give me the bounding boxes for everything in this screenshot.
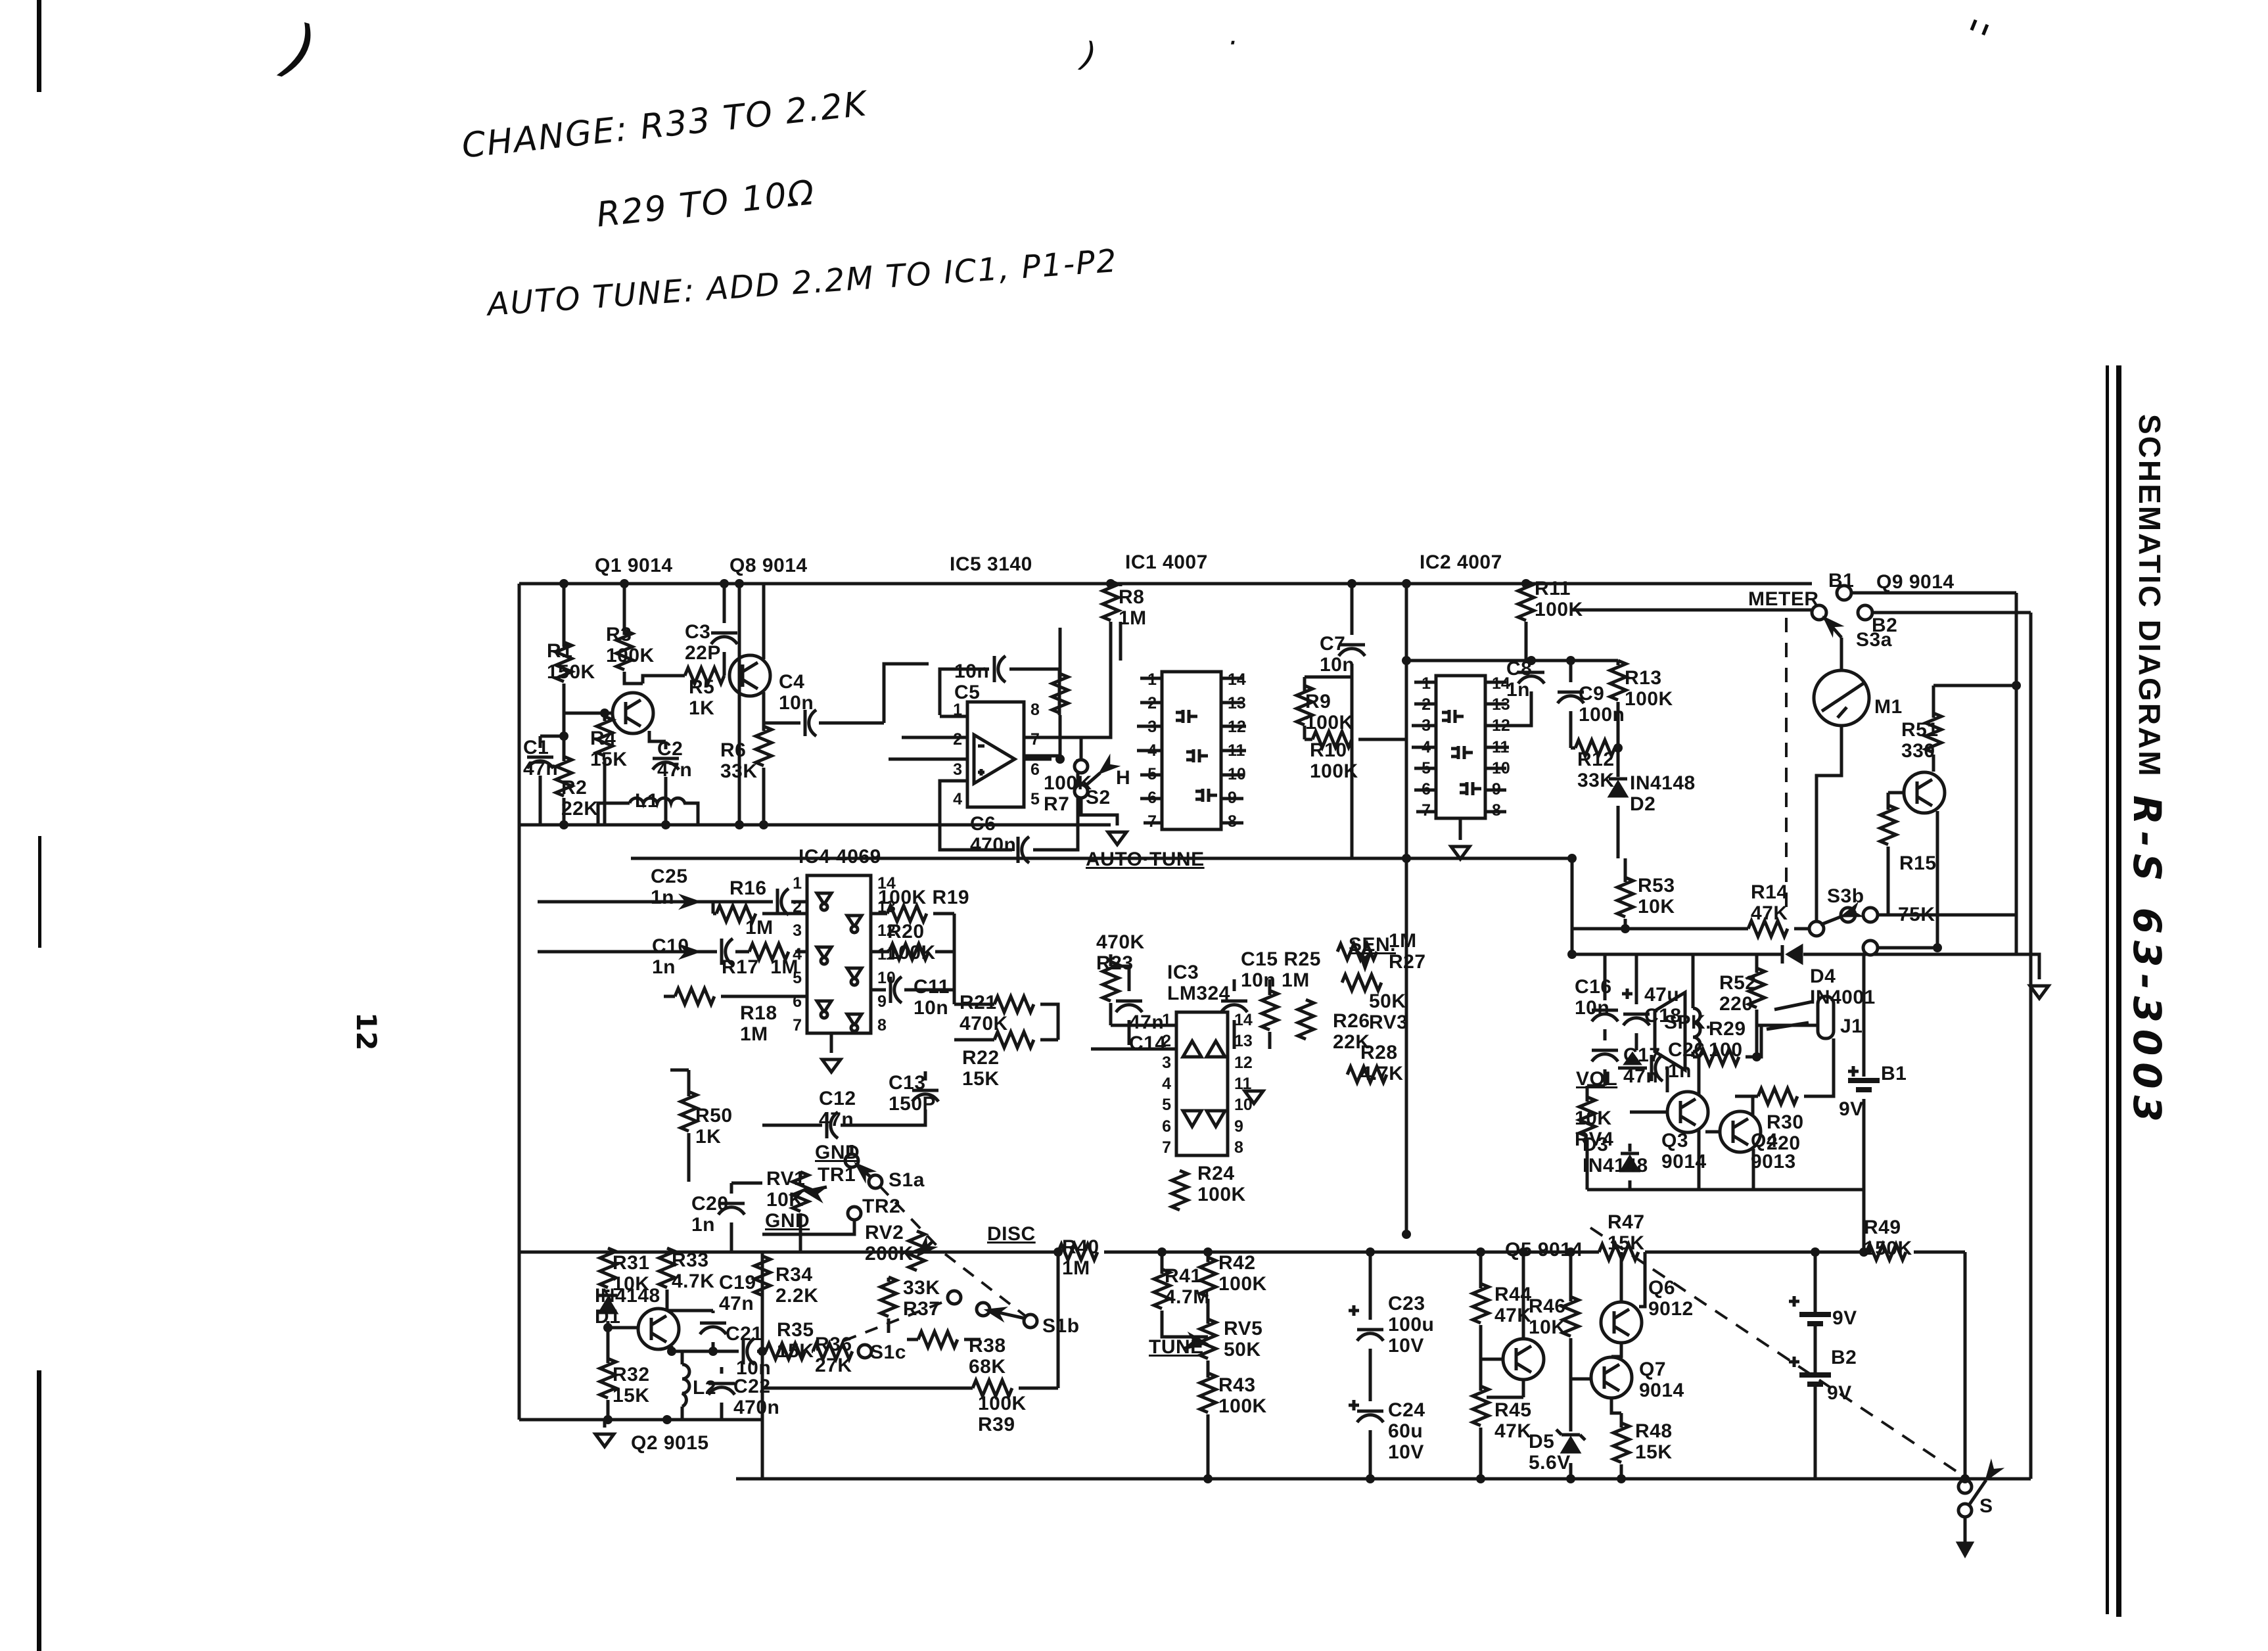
label-470k: 470K R23 [1096,932,1145,974]
ic5-3140-pin-4: 4 [938,791,962,808]
ic2-4007-pin-1: 1 [1407,676,1431,692]
ic1-4007-pin-12: 12 [1228,719,1251,735]
ic2-4007-pin-3: 3 [1407,718,1431,734]
ic1-4007-pin-5: 5 [1133,766,1157,783]
label-tr2: TR2 [862,1196,900,1217]
ic2-4007-pin-5: 5 [1407,760,1431,777]
label-r21: R21 470K [960,992,1008,1035]
ic1-4007-pin-8: 8 [1228,814,1251,830]
ic4-4069-pin-12: 12 [877,923,901,939]
label-rv5: RV5 50K [1224,1318,1262,1360]
label-c16: C16 10n [1575,977,1612,1019]
label-ic5: IC5 3140 [950,554,1032,575]
label-r22: R22 15K [962,1048,1000,1090]
ic1-4007-pin-3: 3 [1133,719,1157,735]
ic3-lm324-pin-1: 1 [1147,1012,1171,1029]
label-r2: R2 22K [561,778,599,820]
label-in4148: IN4148 D2 [1630,773,1696,815]
handwritten-note: · [1228,28,1238,59]
ic5-3140-pin-7: 7 [1030,732,1054,748]
label-q7: Q7 9014 [1639,1359,1684,1401]
ic4-4069-pin-9: 9 [877,994,901,1010]
label-r1: R1 150K [547,641,595,683]
label-d4: D4 IN4001 [1810,966,1876,1008]
label-9v: 9V [1839,1099,1864,1120]
page-number: 12 [352,1012,380,1050]
ic1-4007-pin-6: 6 [1133,790,1157,806]
ic4-4069-pin-4: 4 [778,946,802,963]
label-r9: R9 100K [1305,691,1354,733]
label-autotune: AUTO·TUNE [1086,849,1205,870]
label-j1: J1 [1840,1016,1863,1037]
ic3-lm324-pin-3: 3 [1147,1055,1171,1071]
label-c11: C11 10n [914,977,950,1019]
label-1m: 1M R27 [1389,931,1426,973]
label-50k: 50K RV3 [1369,991,1408,1033]
label-r3: R3 100K [606,624,655,666]
label-spk.: SPK. [1664,1012,1711,1033]
label-r48: R48 15K [1635,1421,1673,1463]
ic5-3140-pin-5: 5 [1030,791,1054,808]
ic4-4069-pin-8: 8 [877,1017,901,1034]
label-c4: C4 10n [779,672,814,714]
label-r13: R13 100K [1625,668,1673,710]
label-r34: R34 2.2K [775,1265,818,1307]
ic2-4007-pin-14: 14 [1492,676,1516,692]
label-b1: B1 [1828,570,1854,592]
label-r47: R47 15K [1608,1212,1645,1254]
label-s2: S2 [1086,787,1111,808]
label-r46: R46 10K [1529,1296,1566,1338]
label-l1: L1 [635,791,659,812]
label-r41: R41 4.7M [1165,1266,1210,1308]
label-r14: R14 47K [1751,882,1788,924]
label-10n: 10n C5 [954,661,989,703]
label-r36: R36 27K [815,1334,852,1376]
ic2-4007-pin-6: 6 [1407,781,1431,798]
label-33k: 33K R37 [903,1278,940,1320]
ic3-lm324-pin-11: 11 [1234,1076,1258,1092]
label-r50: R50 1K [695,1105,733,1148]
ic3-lm324-pin-5: 5 [1147,1097,1171,1113]
label-s1a: S1a [889,1170,925,1191]
label-9v: 9V [1827,1383,1852,1404]
label-gnd: GND [765,1211,810,1232]
label-c20: C20 1n [691,1194,729,1236]
label-c7: C7 10n [1320,634,1354,676]
ic4-4069-pin-10: 10 [877,970,901,987]
label-r32: R32 15K [613,1364,650,1407]
label-meter: METER [1748,589,1819,610]
ic2-4007-pin-12: 12 [1492,718,1516,734]
label-q1: Q1 9014 [595,555,673,576]
label-c6: C6 470n [970,814,1016,856]
label-q8: Q8 9014 [729,555,808,576]
label-q6: Q6 9012 [1648,1278,1694,1320]
label-c3: C3 22P [685,622,721,664]
ic2-4007-pin-7: 7 [1407,802,1431,819]
label-h: H [1116,768,1130,789]
ic1-4007-pin-13: 13 [1228,695,1251,712]
label-rv2: RV2 200K [865,1222,914,1265]
label-r33: R33 4.7K [672,1250,714,1292]
label-r44: R44 47K [1494,1284,1532,1326]
label-r15: R15 [1899,853,1937,874]
label-r40: R40 1M [1062,1237,1099,1279]
ic5-3140-pin-3: 3 [938,762,962,778]
ic4-4069-pin-1: 1 [778,875,802,892]
label-q9: Q9 9014 [1876,572,1955,593]
ic3-lm324-pin-12: 12 [1234,1055,1258,1071]
ic4-4069-pin-3: 3 [778,923,802,939]
label-r53: R53 10K [1638,875,1675,918]
label-c23: C23 100u 10V [1388,1293,1434,1357]
label-r18: R18 1M [740,1003,777,1045]
ic1-4007-pin-4: 4 [1133,743,1157,759]
label-ic2: IC2 4007 [1420,552,1502,573]
label-l2: L2 [693,1378,716,1399]
label-r12: R12 33K [1577,749,1615,791]
ic2-4007-pin-8: 8 [1492,802,1516,819]
ic4-4069-pin-14: 14 [877,875,901,892]
label-ic3: IC3 LM324 [1167,962,1230,1004]
label-r45: R45 47K [1494,1400,1532,1442]
label-r35: R35 15K [777,1320,814,1362]
label-c25: C25 1n [651,866,688,908]
label-c17: C17 47n [1623,1045,1661,1087]
label-rv1: RV1 10K [766,1169,805,1211]
label-d3: D3 IN4148 [1583,1134,1648,1176]
ic3-lm324-pin-2: 2 [1147,1033,1171,1050]
ic2-4007-pin-10: 10 [1492,760,1516,777]
label-vol: VOL [1576,1069,1617,1090]
label-c9: C9 100n [1579,684,1625,726]
ic3-lm324-pin-6: 6 [1147,1119,1171,1135]
ic4-4069-pin-6: 6 [778,994,802,1010]
ic3-lm324-pin-8: 8 [1234,1140,1258,1156]
label-c21: C21 [726,1324,763,1345]
label-gnd: GND [815,1142,860,1163]
label-c2: C2 47n [657,739,692,781]
label-m1: M1 [1874,697,1903,718]
ic1-4007-pin-9: 9 [1228,790,1251,806]
ic1-4007-pin-7: 7 [1133,814,1157,830]
ic3-lm324-pin-7: 7 [1147,1140,1171,1156]
ic2-4007-pin-4: 4 [1407,739,1431,756]
label-ic4: IC4 4069 [798,847,881,868]
scanned-schematic-page: CHANGE: R33 TO 2.2KR29 TO 10ΩAUTO TUNE: … [0,0,2268,1651]
label-c24: C24 60u 10V [1388,1400,1425,1463]
label-r49: R49 150K [1864,1217,1912,1259]
label-r28: R28 4.7K [1360,1042,1403,1084]
label-r51: R51 330 [1901,720,1939,762]
ic5-3140-pin-6: 6 [1030,762,1054,778]
ic3-lm324-pin-13: 13 [1234,1033,1258,1050]
label-r24: R24 100K [1197,1163,1246,1205]
label-c26: C26 1n [1668,1040,1705,1082]
label-r11: R11 100K [1535,578,1583,620]
ic1-4007-pin-1: 1 [1133,672,1157,688]
label-r29: R29 100 [1709,1019,1746,1061]
ic1-4007-pin-10: 10 [1228,766,1251,783]
label-r8: R8 1M [1119,587,1147,629]
ic2-4007-pin-9: 9 [1492,781,1516,798]
label-c19: C19 47n [719,1272,756,1314]
sidebar-title: SCHEMATIC DIAGRAM [2135,414,2165,778]
label-s3a: S3a [1856,630,1892,651]
label-r10: R10 100K [1310,740,1358,782]
label-r4: R4 15K [590,728,628,770]
label-100k: 100K R39 [978,1393,1027,1435]
label-c15: C15 R25 10n 1M [1241,949,1321,991]
ic2-4007-pin-2: 2 [1407,697,1431,713]
ic1-4007-pin-14: 14 [1228,672,1251,688]
ic5-3140-pin-2: 2 [938,732,962,748]
label-1m: 1M [745,918,774,939]
label-s3b: S3b [1827,886,1864,907]
label-b2: B2 [1831,1347,1857,1368]
label-b1: B1 [1881,1063,1907,1084]
label-tune: TUNE [1149,1337,1204,1358]
label-75k: 75K [1898,904,1935,925]
ic4-4069-pin-11: 11 [877,946,901,963]
label-r52: R52 220 [1719,973,1757,1015]
label-c1: C1 47n [523,737,558,779]
ic3-lm324-pin-9: 9 [1234,1119,1258,1135]
ic4-4069-pin-7: 7 [778,1017,802,1034]
label-disc: DISC [987,1224,1036,1245]
label-r42: R42 100K [1218,1253,1267,1295]
label-c13: C13 150P [889,1073,936,1115]
label-ic1: IC1 4007 [1125,552,1208,573]
label-c22: C22 470n [733,1376,779,1418]
label-q2: Q2 9015 [631,1433,709,1454]
label-c10: C10 1n [652,936,689,978]
label-r6: R6 33K [720,740,758,782]
label-r38: R38 68K [969,1336,1006,1378]
ic4-4069-pin-2: 2 [778,899,802,916]
label-s1c: S1c [870,1342,906,1363]
ic3-lm324-pin-10: 10 [1234,1097,1258,1113]
ic5-3140-pin-8: 8 [1030,702,1054,718]
ic3-lm324-pin-14: 14 [1234,1012,1258,1029]
ic5-3140-pin-1: 1 [938,702,962,718]
label-r16: R16 [729,878,767,899]
ic3-lm324-pin-4: 4 [1147,1076,1171,1092]
label-q4: Q4 9013 [1751,1130,1796,1173]
ic4-4069-pin-5: 5 [778,970,802,987]
label-d5: D5 5.6V [1529,1431,1571,1474]
label-s1b: S1b [1042,1316,1080,1337]
ic4-4069-pin-13: 13 [877,899,901,916]
label-tr1: TR1 [818,1165,856,1186]
ic1-4007-pin-11: 11 [1228,743,1251,759]
label-in4148: IN4148 D1 [595,1286,660,1328]
label-q3: Q3 9014 [1661,1130,1707,1173]
sidebar-model: R-S 63-3003 [2128,795,2166,1128]
label-c12: C12 47n [819,1088,856,1130]
ic2-4007-pin-13: 13 [1492,697,1516,713]
ic1-4007-pin-2: 2 [1133,695,1157,712]
label-q5: Q5 9014 [1505,1240,1583,1261]
ic2-4007-pin-11: 11 [1492,739,1516,756]
label-s: S [1979,1496,1993,1517]
label-r43: R43 100K [1218,1375,1267,1417]
label-r5: R5 1K [689,677,714,719]
label-9v: 9V [1832,1308,1857,1329]
